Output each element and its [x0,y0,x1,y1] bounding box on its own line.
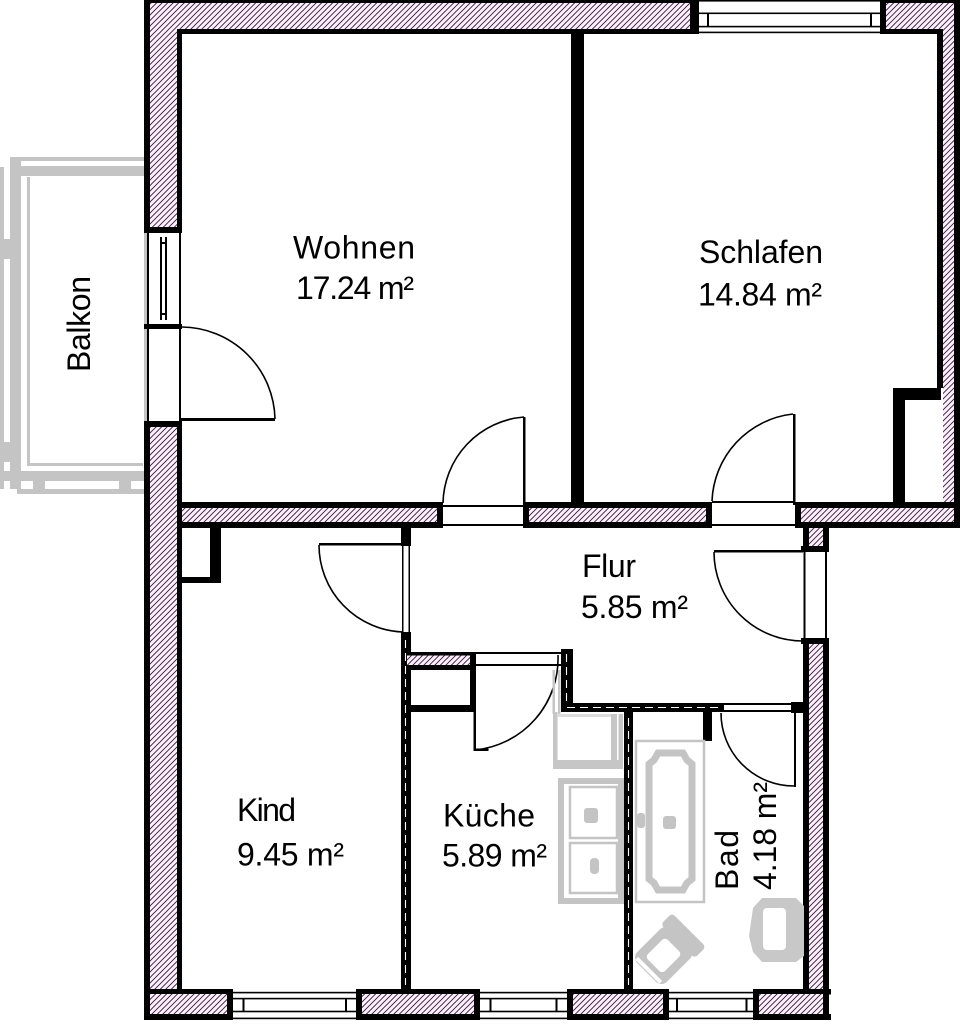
svg-text:Balkon: Balkon [61,276,97,372]
svg-text:Flur: Flur [582,548,636,584]
svg-text:5.85 m²: 5.85 m² [581,589,688,625]
svg-text:17.24 m²: 17.24 m² [296,270,414,306]
svg-text:14.84 m²: 14.84 m² [698,277,822,313]
svg-text:Schlafen: Schlafen [699,234,823,270]
svg-text:5.89 m²: 5.89 m² [442,838,547,874]
svg-text:9.45 m²: 9.45 m² [237,837,344,873]
svg-text:4.18 m²: 4.18 m² [747,782,783,890]
svg-text:Kind: Kind [237,792,296,828]
svg-text:Bad: Bad [709,830,745,890]
svg-text:Wohnen: Wohnen [293,230,415,266]
svg-text:Küche: Küche [443,798,535,834]
